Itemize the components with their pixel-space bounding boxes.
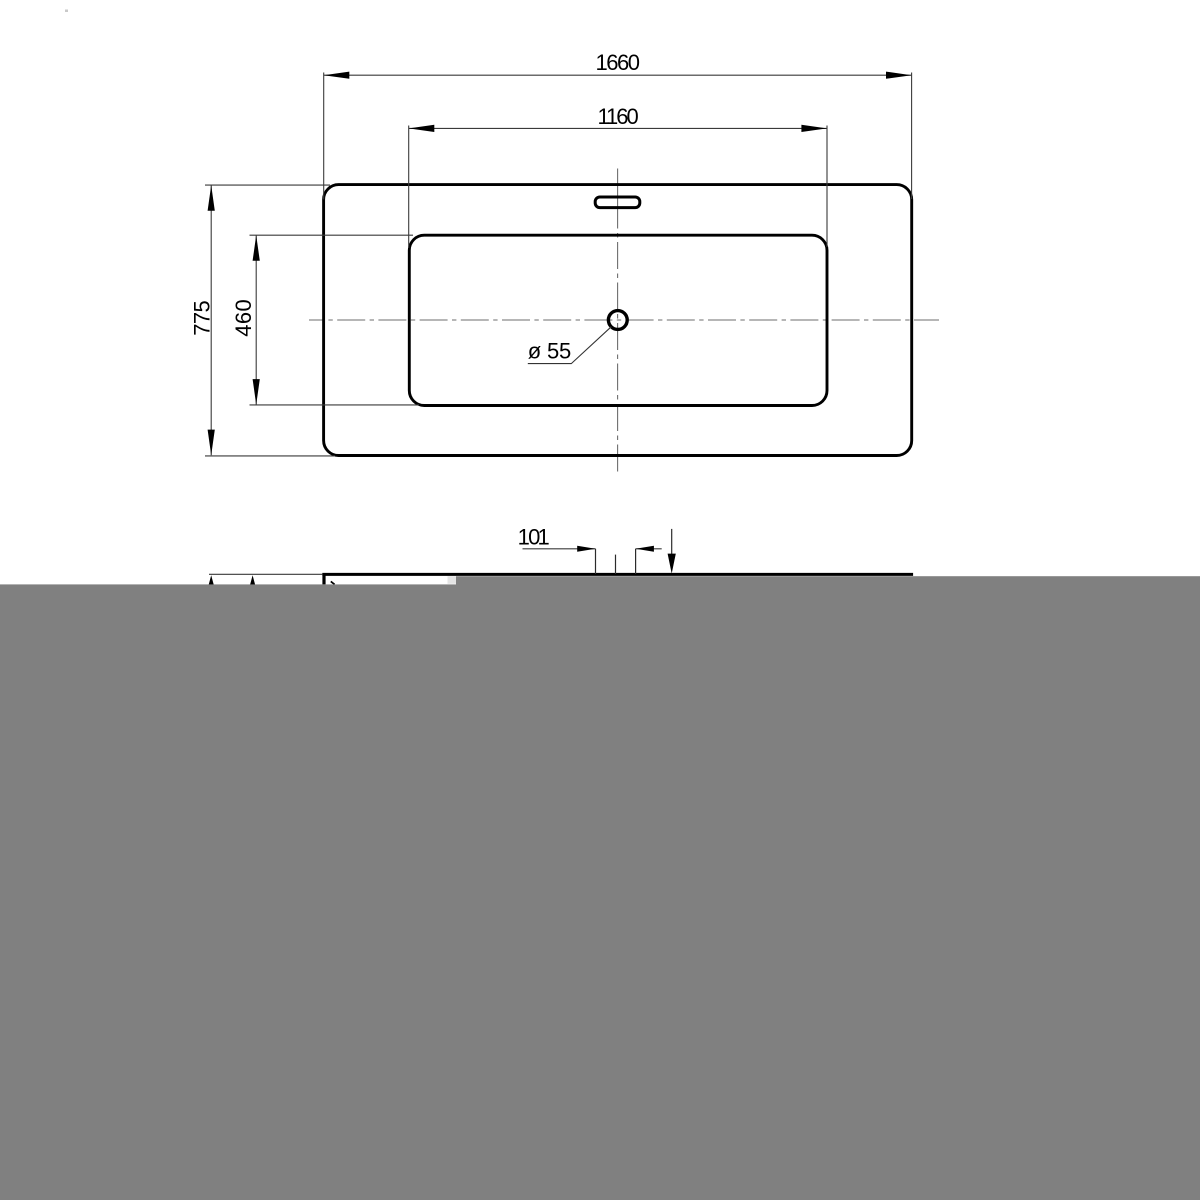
svg-text:460: 460 bbox=[231, 299, 256, 336]
svg-text:1160: 1160 bbox=[597, 104, 638, 129]
svg-text:775: 775 bbox=[189, 300, 214, 336]
svg-text:1: 1 bbox=[537, 524, 549, 549]
svg-text:1660: 1660 bbox=[596, 50, 641, 75]
svg-text:ø 55: ø 55 bbox=[528, 339, 572, 364]
